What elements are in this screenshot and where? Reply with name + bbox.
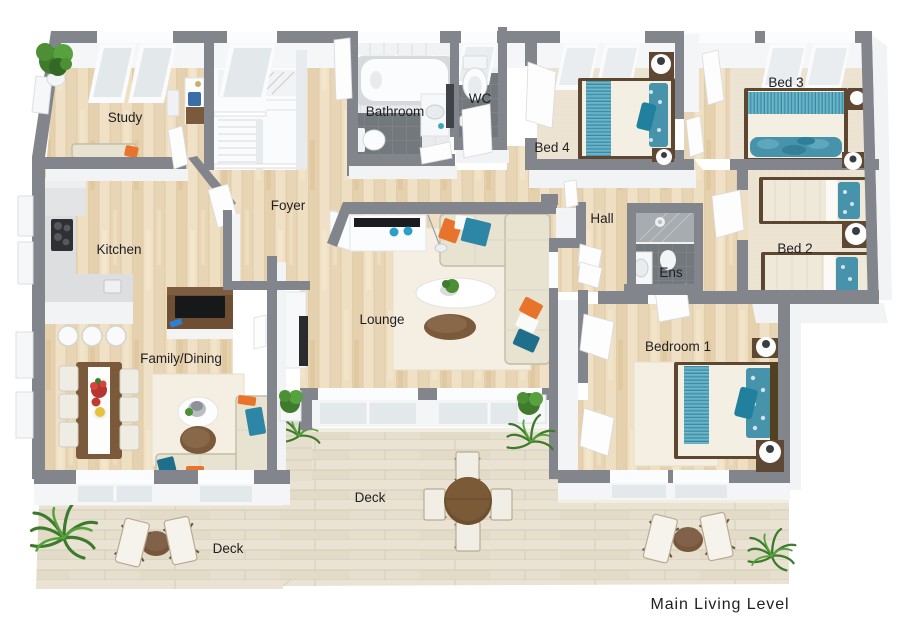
svg-text:Main Living Level: Main Living Level [651,596,790,613]
svg-text:Foyer: Foyer [271,198,306,213]
svg-text:Kitchen: Kitchen [96,242,141,257]
svg-text:Family/Dining: Family/Dining [140,351,222,366]
svg-text:WC: WC [469,91,492,106]
svg-text:Bed 2: Bed 2 [777,241,812,256]
svg-text:Study: Study [108,110,143,125]
svg-text:Deck: Deck [213,541,244,556]
svg-text:Bed 3: Bed 3 [768,75,803,90]
svg-text:Hall: Hall [590,211,613,226]
svg-text:Ens: Ens [659,265,683,280]
svg-text:Lounge: Lounge [359,312,404,327]
svg-text:Bathroom: Bathroom [366,104,425,119]
svg-text:Bed 4: Bed 4 [534,140,570,155]
svg-text:Deck: Deck [355,490,386,505]
svg-text:Bedroom 1: Bedroom 1 [645,339,711,354]
